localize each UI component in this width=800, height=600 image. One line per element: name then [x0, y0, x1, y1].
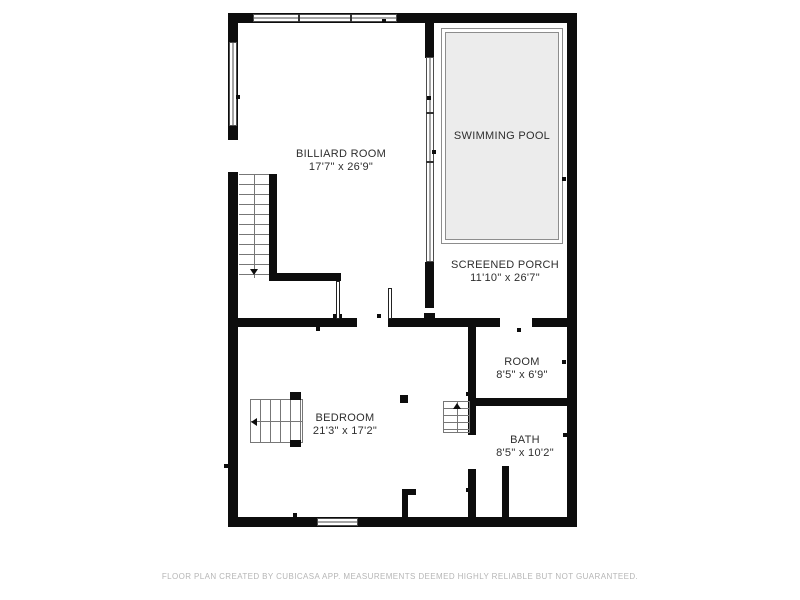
- swimming-pool-water: SWIMMING POOL: [445, 32, 559, 240]
- dimension-tick: [224, 464, 228, 468]
- dimension-tick: [562, 177, 566, 181]
- room-dimensions: 17'7" x 26'9": [296, 161, 386, 174]
- dimension-tick: [316, 327, 320, 331]
- room-label-room: ROOM 8'5" x 6'9": [496, 356, 547, 382]
- railing-stair-opening-left: [336, 281, 340, 319]
- window-porch: [426, 57, 434, 262]
- window-left: [229, 42, 237, 126]
- room-label-bath: BATH 8'5" x 10'2": [496, 434, 554, 460]
- dimension-tick: [377, 314, 381, 318]
- room-label-billiard: BILLIARD ROOM 17'7" x 26'9": [296, 148, 386, 174]
- wall-room-bath-divider: [468, 398, 577, 406]
- wall-junction-block-b: [424, 313, 435, 327]
- room-name: ROOM: [496, 356, 547, 369]
- room-label-porch: SCREENED PORCH 11'10" x 26'7": [451, 259, 559, 285]
- dimension-tick: [466, 488, 470, 492]
- room-name: BEDROOM: [313, 412, 377, 425]
- window-porch-mullion-2: [426, 161, 434, 163]
- stairs-small: [443, 401, 470, 433]
- stairs-main-centerline: [254, 175, 255, 278]
- stairs-up-arrow-icon: [453, 403, 461, 409]
- railing-stair-opening-right: [388, 288, 392, 319]
- dimension-tick: [563, 433, 567, 437]
- wall-exterior-bottom: [228, 517, 577, 527]
- wall-bedroom-room-lower: [468, 469, 476, 517]
- stairs-bedroom-newel-bottom: [290, 440, 301, 447]
- wall-stairwell-horizontal: [269, 273, 341, 281]
- room-dimensions: 8'5" x 6'9": [496, 369, 547, 382]
- wall-exterior-right: [567, 13, 577, 527]
- room-label-bedroom: BEDROOM 21'3" x 17'2": [313, 412, 377, 438]
- dimension-tick: [293, 513, 297, 517]
- column-post: [400, 395, 408, 403]
- wall-middle-segment-3: [532, 318, 577, 327]
- stairs-bedroom-centerline: [251, 421, 302, 422]
- swimming-pool: SWIMMING POOL: [441, 28, 563, 244]
- room-label-pool: SWIMMING POOL: [454, 130, 550, 142]
- dimension-tick: [517, 328, 521, 332]
- window-top-mullion-2: [350, 14, 352, 22]
- stairs-down-arrow-icon: [250, 269, 258, 275]
- wall-middle-segment-2: [388, 318, 500, 327]
- window-porch-mullion-1: [426, 112, 434, 114]
- dimension-tick: [382, 19, 386, 23]
- wall-bath-stub: [502, 466, 509, 517]
- stairs-bedroom: [250, 399, 303, 443]
- dimension-tick: [499, 19, 503, 23]
- dimension-tick: [432, 150, 436, 154]
- room-name: BATH: [496, 434, 554, 447]
- room-dimensions: 21'3" x 17'2": [313, 425, 377, 438]
- wall-stairwell-vertical: [269, 174, 277, 281]
- stairs-bedroom-newel-top: [290, 392, 301, 400]
- room-name: SCREENED PORCH: [451, 259, 559, 272]
- wall-exterior-left-lower: [228, 172, 238, 527]
- footer-disclaimer: FLOOR PLAN CREATED BY CUBICASA APP. MEAS…: [0, 572, 800, 581]
- wall-porch-left-lower: [425, 262, 434, 308]
- window-bottom: [317, 518, 358, 526]
- wall-porch-left-upper: [425, 22, 434, 58]
- window-top: [253, 14, 397, 22]
- room-dimensions: 11'10" x 26'7": [451, 272, 559, 285]
- stairs-main: [239, 174, 269, 278]
- room-dimensions: 8'5" x 10'2": [496, 447, 554, 460]
- dimension-tick: [466, 392, 470, 396]
- room-name: BILLIARD ROOM: [296, 148, 386, 161]
- dimension-tick: [562, 360, 566, 364]
- dimension-tick: [427, 96, 431, 100]
- stairs-left-arrow-icon: [251, 418, 257, 426]
- wall-bedroom-stub-cap: [402, 489, 416, 495]
- dimension-tick: [236, 95, 240, 99]
- floor-plan: SWIMMING POOL BILLIARD ROOM 17'7" x 26'9…: [0, 0, 800, 600]
- window-top-mullion-1: [298, 14, 300, 22]
